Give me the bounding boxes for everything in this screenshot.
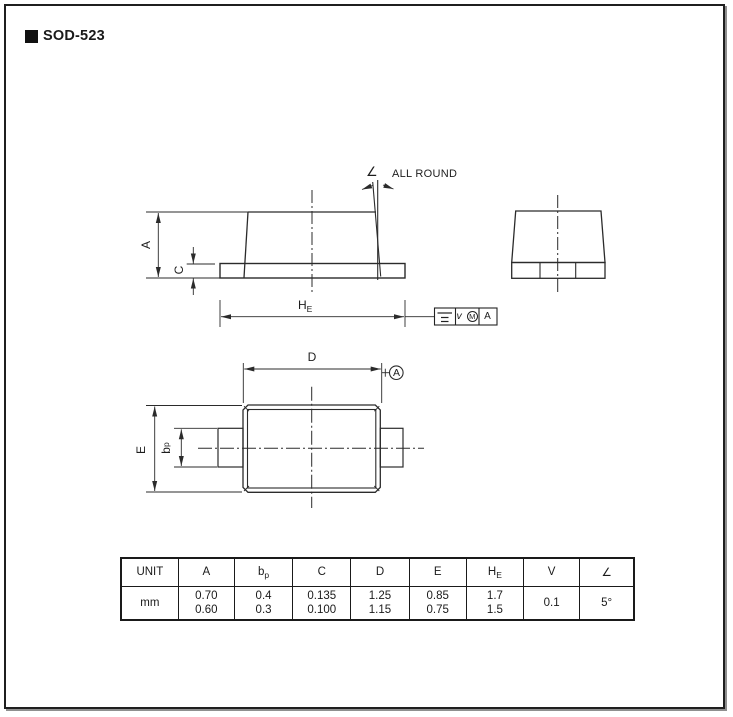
- angle-icon: ∠: [366, 164, 378, 180]
- col-header-v: V: [524, 558, 580, 587]
- dim-label-he: HE: [298, 298, 312, 314]
- dim-label-a: A: [138, 225, 154, 265]
- cell-unit: mm: [121, 587, 178, 621]
- table-data-row: mm 0.700.60 0.40.3 0.1350.100 1.251.15 0…: [121, 587, 634, 621]
- col-header-d: D: [351, 558, 409, 587]
- col-header-a: A: [178, 558, 234, 587]
- dimension-table: UNIT A bp C D E HE V ∠ mm 0.700.60 0.40.…: [120, 557, 635, 621]
- dim-label-c: C: [171, 250, 187, 290]
- cell-v: 0.1: [524, 587, 580, 621]
- datum-a-flag: A: [390, 366, 403, 380]
- col-header-bp: bp: [234, 558, 292, 587]
- dim-label-d: D: [303, 350, 321, 364]
- side-view-drawing: [512, 195, 605, 293]
- cell-a: 0.700.60: [178, 587, 234, 621]
- col-header-c: C: [293, 558, 351, 587]
- mmc-modifier-icon: M: [467, 311, 479, 323]
- dim-label-e: E: [133, 430, 149, 470]
- cell-d: 1.251.15: [351, 587, 409, 621]
- col-header-he: HE: [466, 558, 523, 587]
- front-view-drawing: [146, 180, 434, 327]
- tolerance-datum-ref: A: [479, 311, 496, 322]
- dim-label-bp: bp: [158, 428, 174, 468]
- tolerance-value-ref: v: [457, 310, 462, 322]
- cell-he: 1.71.5: [466, 587, 523, 621]
- all-round-label: ALL ROUND: [392, 168, 457, 180]
- col-header-angle: ∠: [580, 558, 634, 587]
- top-view-drawing: [146, 363, 424, 508]
- cell-angle: 5°: [580, 587, 634, 621]
- col-header-e: E: [409, 558, 466, 587]
- table-header-row: UNIT A bp C D E HE V ∠: [121, 558, 634, 587]
- cell-c: 0.1350.100: [293, 587, 351, 621]
- cell-e: 0.850.75: [409, 587, 466, 621]
- cell-bp: 0.40.3: [234, 587, 292, 621]
- col-header-unit: UNIT: [121, 558, 178, 587]
